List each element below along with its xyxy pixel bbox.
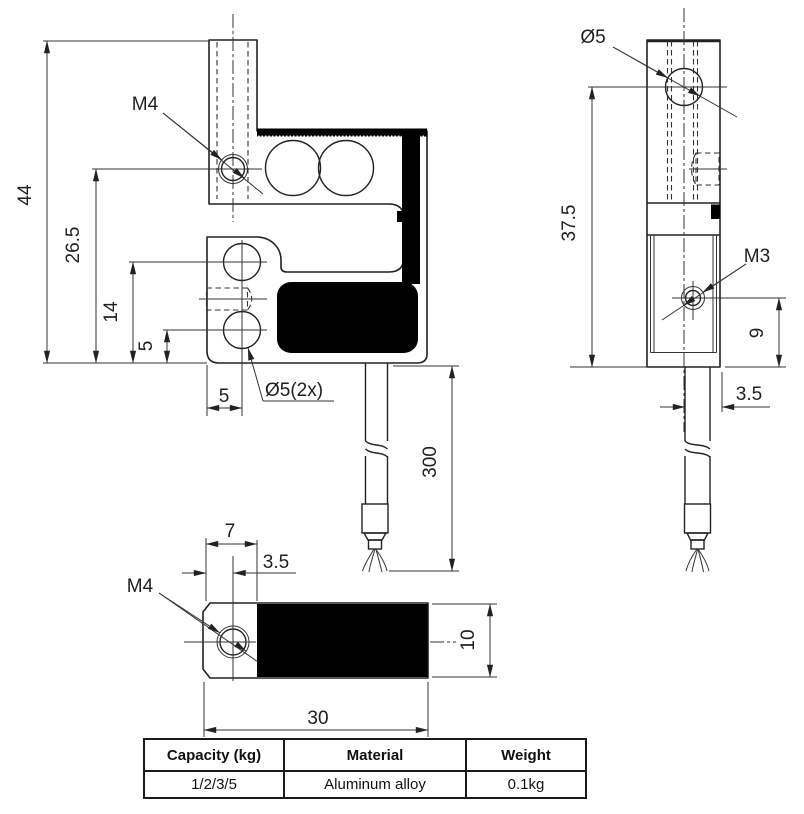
dim-14-label: 14 bbox=[101, 301, 122, 323]
wire bbox=[698, 549, 709, 571]
bottom-view: 7 3.5 M4 10 30 bbox=[127, 521, 497, 737]
front-seal-notch bbox=[397, 211, 406, 222]
wire bbox=[686, 549, 697, 571]
side-cable bbox=[685, 367, 711, 572]
dim-26-5-label: 26.5 bbox=[63, 227, 84, 264]
table-header-capacity: Capacity (kg) bbox=[144, 739, 284, 771]
dim-3-5-side-label: 3.5 bbox=[736, 384, 762, 405]
bottom-black-cover bbox=[257, 604, 428, 677]
front-top-seal-band bbox=[257, 129, 427, 137]
wire bbox=[376, 549, 382, 572]
dim-37-5-label: 37.5 bbox=[559, 205, 580, 242]
drawing-canvas: 44 26.5 14 5 5 Ø5(2x) M4 300 bbox=[0, 0, 804, 814]
spec-table: Capacity (kg) Material Weight 1/2/3/5 Al… bbox=[143, 738, 587, 799]
table-cell-weight: 0.1kg bbox=[466, 771, 586, 798]
front-right-seal-bar bbox=[402, 131, 420, 284]
m4-label-bottom: M4 bbox=[127, 576, 154, 597]
dim-3-5-bottom-label: 3.5 bbox=[263, 552, 289, 573]
spec-table-header-row: Capacity (kg) Material Weight bbox=[144, 739, 586, 771]
front-gauge-cover bbox=[277, 282, 418, 353]
dim-5v-label: 5 bbox=[136, 341, 157, 352]
table-cell-material: Aluminum alloy bbox=[284, 771, 466, 798]
side-seal-square bbox=[711, 205, 720, 220]
front-view: 44 26.5 14 5 5 Ø5(2x) M4 300 bbox=[15, 14, 459, 572]
table-cell-capacity: 1/2/3/5 bbox=[144, 771, 284, 798]
dia5-2x-label: Ø5(2x) bbox=[265, 380, 323, 401]
table-header-weight: Weight bbox=[466, 739, 586, 771]
dim-10-label: 10 bbox=[458, 629, 479, 650]
m4-label-front: M4 bbox=[132, 94, 159, 115]
m3-label: M3 bbox=[744, 246, 770, 267]
dim-9-label: 9 bbox=[747, 328, 768, 339]
cable-connector bbox=[685, 504, 711, 533]
cable-connector bbox=[362, 504, 388, 533]
table-header-material: Material bbox=[284, 739, 466, 771]
dim-30-label: 30 bbox=[307, 708, 328, 729]
front-cable bbox=[362, 364, 388, 573]
dim-5h-label: 5 bbox=[219, 386, 230, 407]
side-view: Ø5 M3 37.5 9 3.5 bbox=[559, 8, 786, 572]
spec-table-data-row: 1/2/3/5 Aluminum alloy 0.1kg bbox=[144, 771, 586, 798]
dia5-label: Ø5 bbox=[580, 27, 605, 48]
drawing-page: 44 26.5 14 5 5 Ø5(2x) M4 300 bbox=[0, 0, 804, 814]
dim-44-label: 44 bbox=[15, 184, 36, 206]
dim-300-label: 300 bbox=[420, 446, 441, 478]
dim-7-label: 7 bbox=[225, 521, 236, 542]
